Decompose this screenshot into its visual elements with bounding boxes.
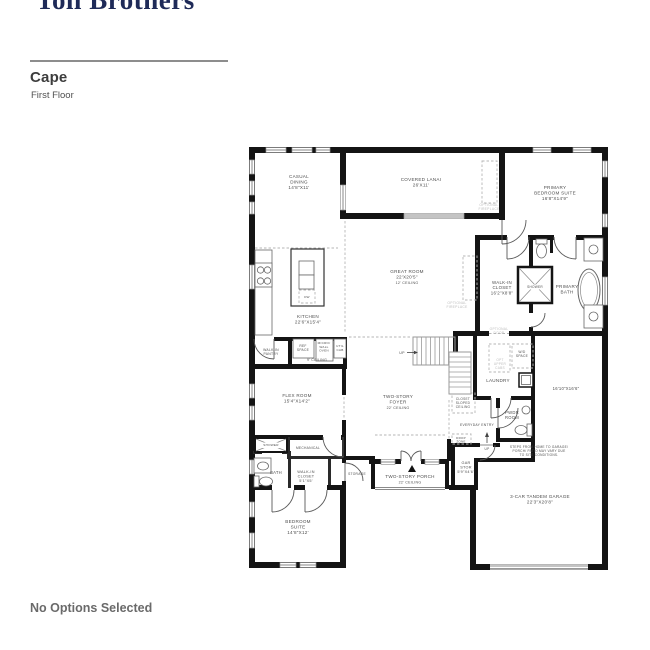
label-bedroom-suite: BEDROOMSUITE14'8"X12' xyxy=(285,519,311,535)
label-pwdr-room: PWDRROOM xyxy=(505,410,519,420)
primary-toilet xyxy=(536,239,547,244)
exterior-walls xyxy=(249,147,608,570)
label-opt-upper-cabs: OPTUPPERCABS xyxy=(494,358,507,370)
label-laundry: LAUNDRY xyxy=(486,378,510,383)
windows xyxy=(250,148,608,570)
label-bath: BATH xyxy=(270,470,282,475)
pwdr-sink xyxy=(522,406,530,414)
label-casual-dining: CASUALDINING14'8"X11' xyxy=(288,174,309,190)
label-primary-bedroom-suite: PRIMARYBEDROOM SUITE16'8"X14'9" xyxy=(534,185,576,201)
label-garage: 3-CAR TANDEM GARAGE22'3"X20'8" xyxy=(510,494,570,504)
optional-fireplace-lanai-box xyxy=(482,161,497,203)
label-storage: STORAGE xyxy=(348,472,366,476)
label-optional-fireplace-lanai: OPTIONALFIREPLACE xyxy=(478,203,500,211)
label-micro-wall-oven: MICRO/WALLOVEN xyxy=(318,341,331,353)
label-drop-zone: DROPZONE xyxy=(456,436,466,444)
up-arrow-garage xyxy=(485,432,489,437)
label-two-story-foyer: TWO-STORYFOYER22' CEILING xyxy=(383,394,413,410)
floorplan-drawing: CASUALDINING14'8"X11'COVERED LANAI26'X11… xyxy=(0,0,650,650)
label-optional-door: OPTIONALDOOR xyxy=(490,327,509,335)
label-flex-room: FLEX ROOM15'4"X14'2" xyxy=(282,393,311,403)
label-walk-in-pantry: WALK-INPANTRY xyxy=(263,348,279,356)
label-kitchen: KITCHEN22'6"X15'4" xyxy=(295,314,321,324)
label-steps-note: STEPS FROM HOME TO GARAGE/PORCH/ PATIO M… xyxy=(510,445,568,457)
label-gar-stor: GARSTOR5'9"X4'6" xyxy=(457,461,475,474)
label-room-16-10: 16'10"X16'6" xyxy=(553,386,580,391)
label-closet-sloped-ceiling: CLOSETSLOPEDCEILING xyxy=(456,397,471,409)
label-nine-ft-ceiling: 9' CEILING xyxy=(307,358,327,362)
label-wd-space: W/DSPACE xyxy=(516,350,529,358)
island-sink xyxy=(299,261,314,275)
label-covered-lanai: COVERED LANAI26'X11' xyxy=(401,177,442,187)
label-up-stairs: UP xyxy=(399,351,405,355)
label-primary-bath: PRIMARYBATH xyxy=(556,284,579,294)
label-util-cab: UTILCAB xyxy=(336,344,344,352)
label-walk-in-closet-primary: WALK-INCLOSET16'2"X8'8" xyxy=(491,280,514,295)
bath-toilet xyxy=(254,476,259,487)
label-up-garage: UP xyxy=(485,447,490,451)
page: Toll Brothers Cape First Floor xyxy=(0,0,650,650)
stairs xyxy=(407,337,471,394)
options-status: No Options Selected xyxy=(30,601,152,615)
optional-fireplace-great-room-box xyxy=(463,256,477,300)
label-dishwasher: DW xyxy=(304,295,310,299)
label-great-room: GREAT ROOM22'X20'5"12' CEILING xyxy=(390,269,423,285)
label-shower-bedroom: SHOWER xyxy=(263,443,279,447)
label-everyday-entry: EVERYDAY ENTRY xyxy=(460,423,494,427)
label-mechanical: MECHANICAL xyxy=(296,446,320,450)
front-door-marker xyxy=(408,465,416,472)
bath-sink xyxy=(258,462,269,470)
label-optional-fireplace-great-room: OPTIONALFIREPLACE xyxy=(446,301,468,309)
label-shower-primary: SHOWER xyxy=(527,285,543,289)
pwdr-toilet xyxy=(527,424,532,436)
label-walk-in-closet-bedroom: WALK-INCLOSET5'1"X5' xyxy=(297,470,314,483)
label-two-story-porch: TWO-STORY PORCH22' CEILING xyxy=(385,474,434,484)
